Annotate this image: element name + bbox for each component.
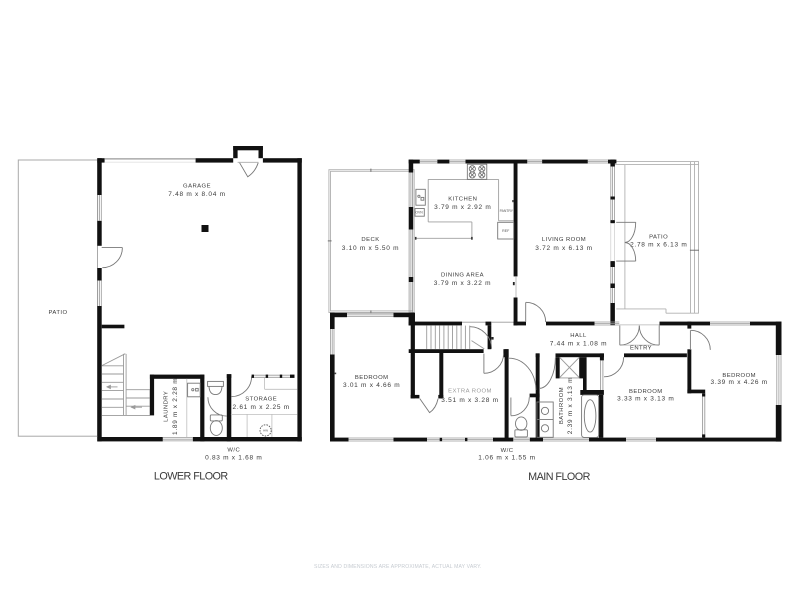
svg-text:3.33 m x 3.13 m: 3.33 m x 3.13 m — [617, 396, 674, 403]
svg-text:DECK: DECK — [361, 237, 379, 243]
svg-text:LAUNDRY: LAUNDRY — [163, 391, 169, 422]
svg-text:KITCHEN: KITCHEN — [448, 197, 477, 203]
svg-text:W/C: W/C — [227, 448, 240, 454]
svg-text:3.39 m x 4.26 m: 3.39 m x 4.26 m — [710, 379, 767, 386]
svg-text:3.72 m x 6.13 m: 3.72 m x 6.13 m — [535, 245, 592, 252]
svg-text:ENTRY: ENTRY — [630, 346, 652, 352]
svg-text:STORAGE: STORAGE — [245, 396, 277, 402]
svg-text:GARAGE: GARAGE — [183, 183, 211, 189]
svg-text:MAIN FLOOR: MAIN FLOOR — [528, 471, 590, 483]
svg-text:PATIO: PATIO — [48, 310, 67, 316]
svg-text:7.48 m x 8.04 m: 7.48 m x 8.04 m — [168, 191, 225, 198]
svg-text:3.79 m x 3.22 m: 3.79 m x 3.22 m — [434, 280, 491, 287]
svg-text:2.78 m x 6.13 m: 2.78 m x 6.13 m — [630, 241, 687, 248]
svg-text:3.51 m x 3.28 m: 3.51 m x 3.28 m — [441, 397, 498, 404]
svg-text:SIZES AND DIMENSIONS ARE APPRO: SIZES AND DIMENSIONS ARE APPROXIMATE, AC… — [314, 564, 482, 570]
svg-text:3.10 m x 5.50 m: 3.10 m x 5.50 m — [342, 245, 399, 252]
svg-text:LOWER FLOOR: LOWER FLOOR — [154, 471, 228, 483]
svg-text:0.83 m x 1.68 m: 0.83 m x 1.68 m — [205, 454, 262, 461]
svg-text:2.61 m x 2.25 m: 2.61 m x 2.25 m — [232, 404, 289, 411]
svg-text:LIVING ROOM: LIVING ROOM — [542, 237, 586, 243]
svg-text:BATHROOM: BATHROOM — [559, 387, 565, 424]
svg-text:1.06 m x 1.55 m: 1.06 m x 1.55 m — [478, 455, 535, 462]
svg-text:DINING AREA: DINING AREA — [441, 273, 484, 279]
svg-text:1.89 m x 2.28 m: 1.89 m x 2.28 m — [172, 378, 179, 435]
svg-text:PANTRY: PANTRY — [500, 209, 514, 213]
svg-text:BEDROOM: BEDROOM — [629, 389, 663, 395]
svg-text:OVN: OVN — [415, 211, 423, 215]
svg-text:3.01 m x 4.66 m: 3.01 m x 4.66 m — [343, 382, 400, 389]
svg-text:HALL: HALL — [570, 333, 587, 339]
svg-text:PATIO: PATIO — [649, 234, 668, 240]
svg-text:7.44 m x 1.08 m: 7.44 m x 1.08 m — [550, 340, 607, 347]
svg-text:BEDROOM: BEDROOM — [355, 375, 389, 381]
svg-text:W/C: W/C — [501, 448, 514, 454]
svg-text:EXTRA ROOM: EXTRA ROOM — [448, 389, 492, 395]
svg-text:2.39 m x 3.13 m: 2.39 m x 3.13 m — [567, 377, 574, 434]
svg-text:3.79 m x 2.92 m: 3.79 m x 2.92 m — [434, 204, 491, 211]
svg-text:HW: HW — [263, 428, 268, 432]
svg-text:REF: REF — [502, 229, 510, 233]
